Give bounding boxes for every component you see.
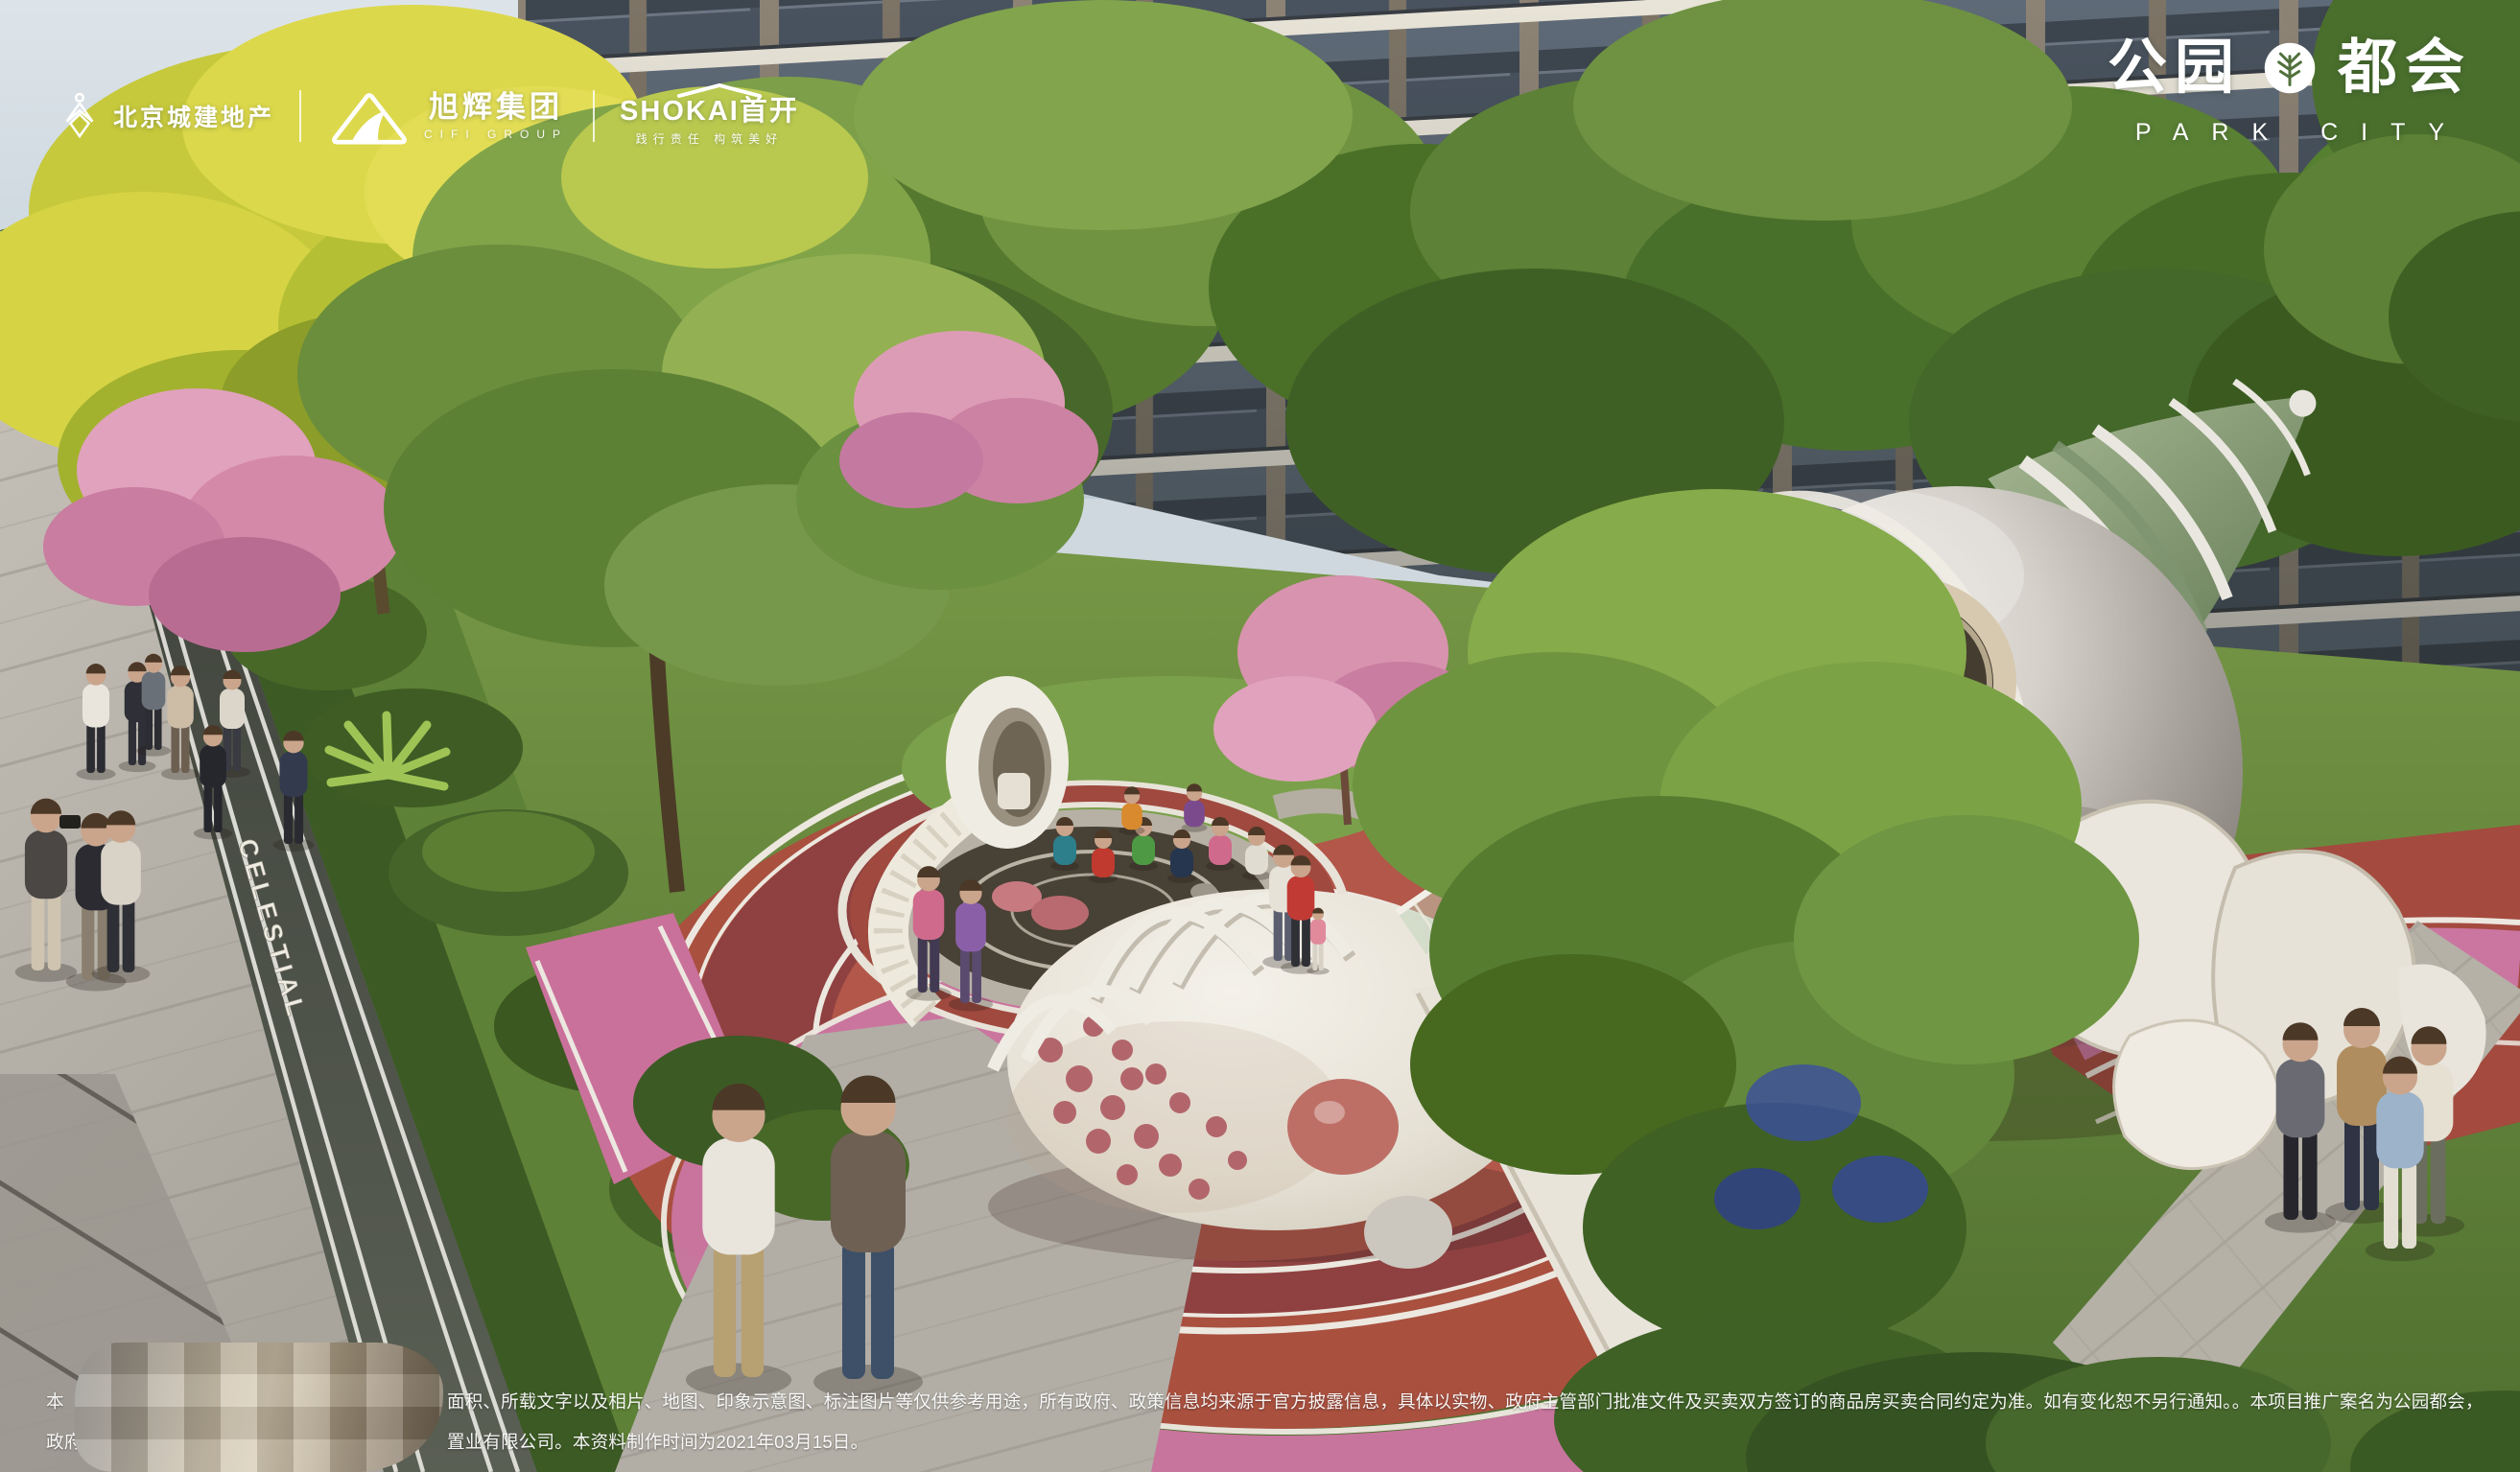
project-name-en: PARK CITY xyxy=(2108,119,2495,147)
moon-gate-pavilion xyxy=(946,676,1069,849)
disclaimer-line1-prefix: 本 xyxy=(46,1389,64,1414)
project-logo: 公园 都会 PARK CITY xyxy=(2108,38,2472,147)
community-rendering: CELESTIAL xyxy=(0,0,2520,1472)
logo-bucc: 北京城建地产 xyxy=(58,91,274,141)
shokai-roof-icon xyxy=(675,82,764,98)
logo-cifi-label: 旭辉集团 xyxy=(429,92,563,122)
cifi-mountain-icon xyxy=(326,86,412,146)
tree-circle-icon xyxy=(2263,41,2317,95)
logo-bucc-label: 北京城建地产 xyxy=(113,99,274,133)
project-name-left: 公园 xyxy=(2108,38,2242,98)
logo-shokai: SHOKAI首开 践行责任 构筑美好 xyxy=(620,88,799,145)
disclaimer-line2: 置业有限公司。本资料制作时间为2021年03月15日。 xyxy=(447,1429,868,1454)
camera xyxy=(59,815,81,829)
logo-cifi-sub: CIFI GROUP xyxy=(424,129,568,140)
logo-shokai-sub: 践行责任 构筑美好 xyxy=(636,133,783,145)
divider xyxy=(299,90,301,142)
project-name-right: 都会 xyxy=(2338,38,2472,98)
divider xyxy=(593,90,595,142)
censored-mosaic xyxy=(75,1343,443,1472)
disclaimer-line1: 面积、所载文字以及相片、地图、印象示意图、标注图片等仅供参考用途，所有政府、政策… xyxy=(447,1389,2484,1414)
logo-shokai-label: SHOKAI首开 xyxy=(620,98,799,126)
poster-canvas: CELESTIAL xyxy=(0,0,2520,1472)
bucc-lantern-icon xyxy=(58,91,102,141)
logo-cifi: 旭辉集团 CIFI GROUP xyxy=(326,86,568,146)
brand-bar: 北京城建地产 旭辉集团 CIFI GROUP SHOKAI首开 践行责任 构筑美… xyxy=(58,86,799,146)
